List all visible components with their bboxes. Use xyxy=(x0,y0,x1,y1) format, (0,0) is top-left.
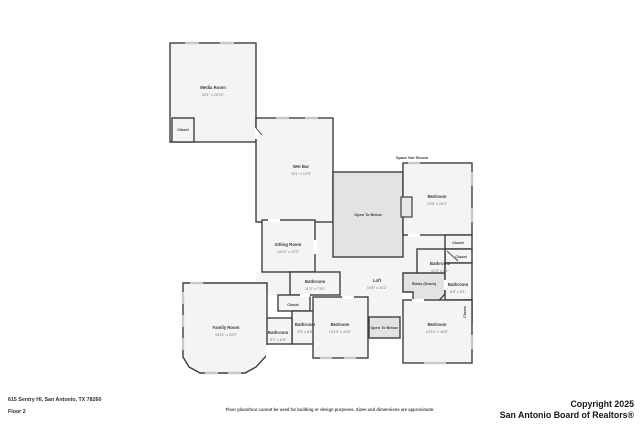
bedroom-top-right-shape xyxy=(403,163,472,235)
bathroom-right-mid-dims: 8'6" x 6'1" xyxy=(450,290,467,294)
family-room-dims: 19'11" x 23'9" xyxy=(215,333,238,337)
copyright-line1: Copyright 2025 xyxy=(570,399,634,409)
bathroom-center-small-label: Bathroom xyxy=(295,322,315,327)
bedroom-bottom-right-label: Bedroom xyxy=(428,322,447,327)
stairs-label: Stairs (Down) xyxy=(412,282,437,286)
bedroom-niche-shape xyxy=(401,197,412,217)
floorplan-svg: Media Room 20'1" x 20'10" Closet Wet Bar… xyxy=(0,0,640,427)
bedroom-bottom-center-label: Bedroom xyxy=(331,322,350,327)
closet-center-label: Closet xyxy=(287,303,299,307)
copyright-line2: San Antonio Board of Realtors® xyxy=(500,410,635,420)
media-room-dims: 20'1" x 20'10" xyxy=(202,93,225,97)
wet-bar-dims: 16'1" x 13'3" xyxy=(291,172,312,176)
sitting-room-label: Sitting Room xyxy=(275,242,302,247)
sitting-room-dims: 13'10" x 13'3" xyxy=(277,250,300,254)
open-to-below-top-label: Open To Below xyxy=(354,213,381,217)
closet-tr1-label: Closet xyxy=(452,241,464,245)
wet-bar-shape xyxy=(256,118,333,222)
bathroom-top-right-label: Bathroom xyxy=(430,261,450,266)
loft-dims: 19'8" x 24'2" xyxy=(367,286,388,290)
open-to-below-bottom-label: Open To Below xyxy=(370,326,397,330)
media-closet-label: Closet xyxy=(177,128,189,132)
loft-label: Loft xyxy=(373,278,382,283)
bathroom-right-mid-label: Bathroom xyxy=(448,282,468,287)
space-not-shown-label: Space Not Shown xyxy=(396,156,429,160)
family-room-label: Family Room xyxy=(213,325,240,330)
bathroom-left-small-dims: 8'1" x 8'5" xyxy=(270,338,287,342)
bedroom-top-right-dims: 13'8" x 16'4" xyxy=(427,202,448,206)
wet-bar-label: Wet Bar xyxy=(293,164,309,169)
floorplan-canvas: Media Room 20'1" x 20'10" Closet Wet Bar… xyxy=(0,0,640,427)
floor-label: Floor 2 xyxy=(8,409,26,415)
footer: 615 Sentry Hl, San Antonio, TX 78260 Flo… xyxy=(8,397,635,420)
bathroom-left-small-label: Bathroom xyxy=(268,330,288,335)
address-text: 615 Sentry Hl, San Antonio, TX 78260 xyxy=(8,397,101,403)
closet-vertical-label: Closet xyxy=(463,305,467,317)
bedroom-bottom-center-shape xyxy=(313,297,368,358)
media-room-label: Media Room xyxy=(200,85,226,90)
bathroom-center-small-dims: 4'5" x 8'5" xyxy=(297,330,314,334)
bedroom-top-right-label: Bedroom xyxy=(428,194,447,199)
bathroom-top-right-dims: 11'9" x 8'1" xyxy=(431,269,450,273)
bedroom-bottom-center-dims: 13'10" x 14'6" xyxy=(329,330,352,334)
bedroom-bottom-right-dims: 13'10" x 16'5" xyxy=(426,330,449,334)
bathroom-center-upper-dims: 11'3" x 7'10" xyxy=(305,287,326,291)
bathroom-center-upper-label: Bathroom xyxy=(305,279,325,284)
closet-tr2-label: Closet xyxy=(455,255,467,259)
disclaimer-text: Floor plans/tour cannot be used for buil… xyxy=(226,407,435,412)
